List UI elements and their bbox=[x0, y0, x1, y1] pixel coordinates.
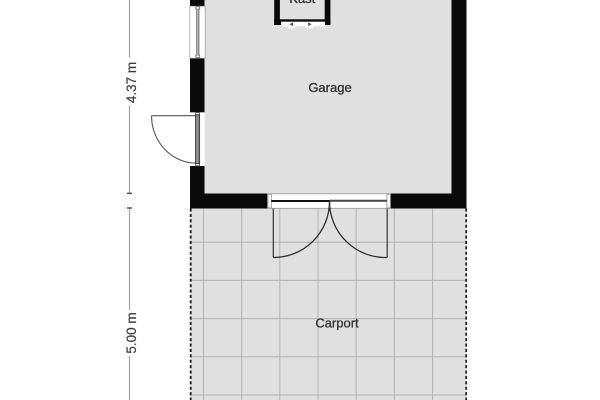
svg-text:Garage: Garage bbox=[308, 80, 351, 95]
svg-text:5.00 m: 5.00 m bbox=[124, 312, 139, 353]
svg-text:Kast: Kast bbox=[289, 0, 315, 6]
svg-text:Carport: Carport bbox=[315, 315, 359, 330]
svg-text:4.37 m: 4.37 m bbox=[124, 62, 139, 103]
